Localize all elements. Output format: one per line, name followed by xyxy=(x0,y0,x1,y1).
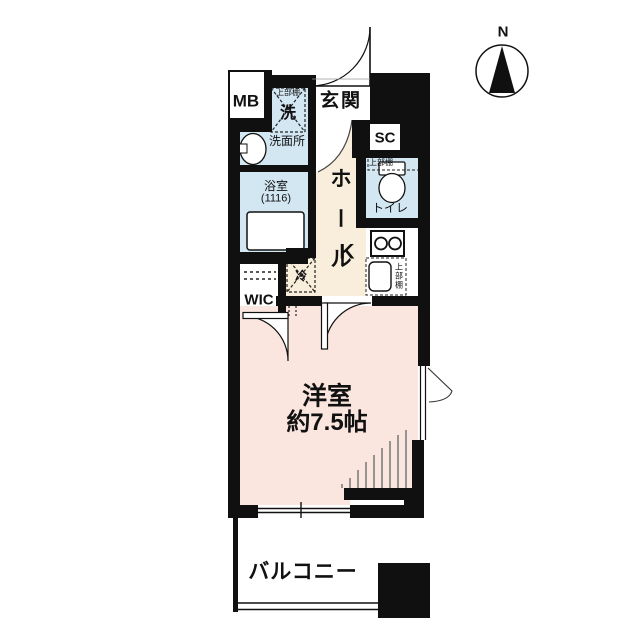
entrance-label: 玄関 xyxy=(320,92,362,111)
wall xyxy=(418,73,430,366)
bathroom-label: 浴室 xyxy=(264,180,288,192)
hall-char: ー xyxy=(326,208,356,229)
washroom-label: 洗面所 xyxy=(269,135,305,147)
western-room-size: 約7.5帖 xyxy=(286,411,367,435)
wall xyxy=(228,132,240,518)
entrance-door-arc xyxy=(312,27,370,86)
side-window xyxy=(418,366,452,440)
sink-icon xyxy=(369,262,391,291)
toilet-icon xyxy=(379,162,405,203)
washer-shelf-note: 上部棚 xyxy=(276,89,300,97)
wall xyxy=(228,70,272,72)
shoe-closet-label: SC xyxy=(375,131,396,146)
wall xyxy=(350,505,418,518)
wall xyxy=(228,118,272,132)
meter-box-label: MB xyxy=(233,93,259,110)
washbasin-faucet-icon xyxy=(239,144,247,153)
balcony-label: バルコニー xyxy=(248,562,358,583)
wall xyxy=(278,252,286,320)
wall xyxy=(276,296,322,306)
hall-char: ホ xyxy=(331,163,352,193)
toilet-shelf-note: 上部棚 xyxy=(369,159,393,167)
floor-plan-page: N MB 上部棚 洗 玄関 SC 洗面所 浴室 (1116) 上部棚 トイレ ホ… xyxy=(0,0,640,639)
wall xyxy=(286,248,316,258)
balcony-corner-block xyxy=(378,563,430,618)
western-room-label: 洋室 xyxy=(302,385,352,410)
wall xyxy=(228,72,230,118)
bathtub-icon xyxy=(247,212,304,250)
wall xyxy=(308,85,316,258)
compass xyxy=(476,45,528,97)
stove-icon xyxy=(371,231,404,256)
balcony-side-wall xyxy=(233,518,238,612)
kitchen-label: K xyxy=(339,242,354,263)
wall xyxy=(240,165,308,172)
wic-label: WIC xyxy=(244,293,273,308)
bathroom-size-note: (1116) xyxy=(261,194,291,205)
compass-north-label: N xyxy=(498,25,509,40)
kitchen-shelf-note: 上部棚 xyxy=(394,263,405,290)
wall xyxy=(228,505,258,518)
washer-label: 洗 xyxy=(280,106,296,122)
wall xyxy=(356,218,428,228)
refrigerator-label: 冷 xyxy=(295,270,307,282)
wall xyxy=(356,158,366,218)
toilet-label: トイレ xyxy=(372,202,408,214)
